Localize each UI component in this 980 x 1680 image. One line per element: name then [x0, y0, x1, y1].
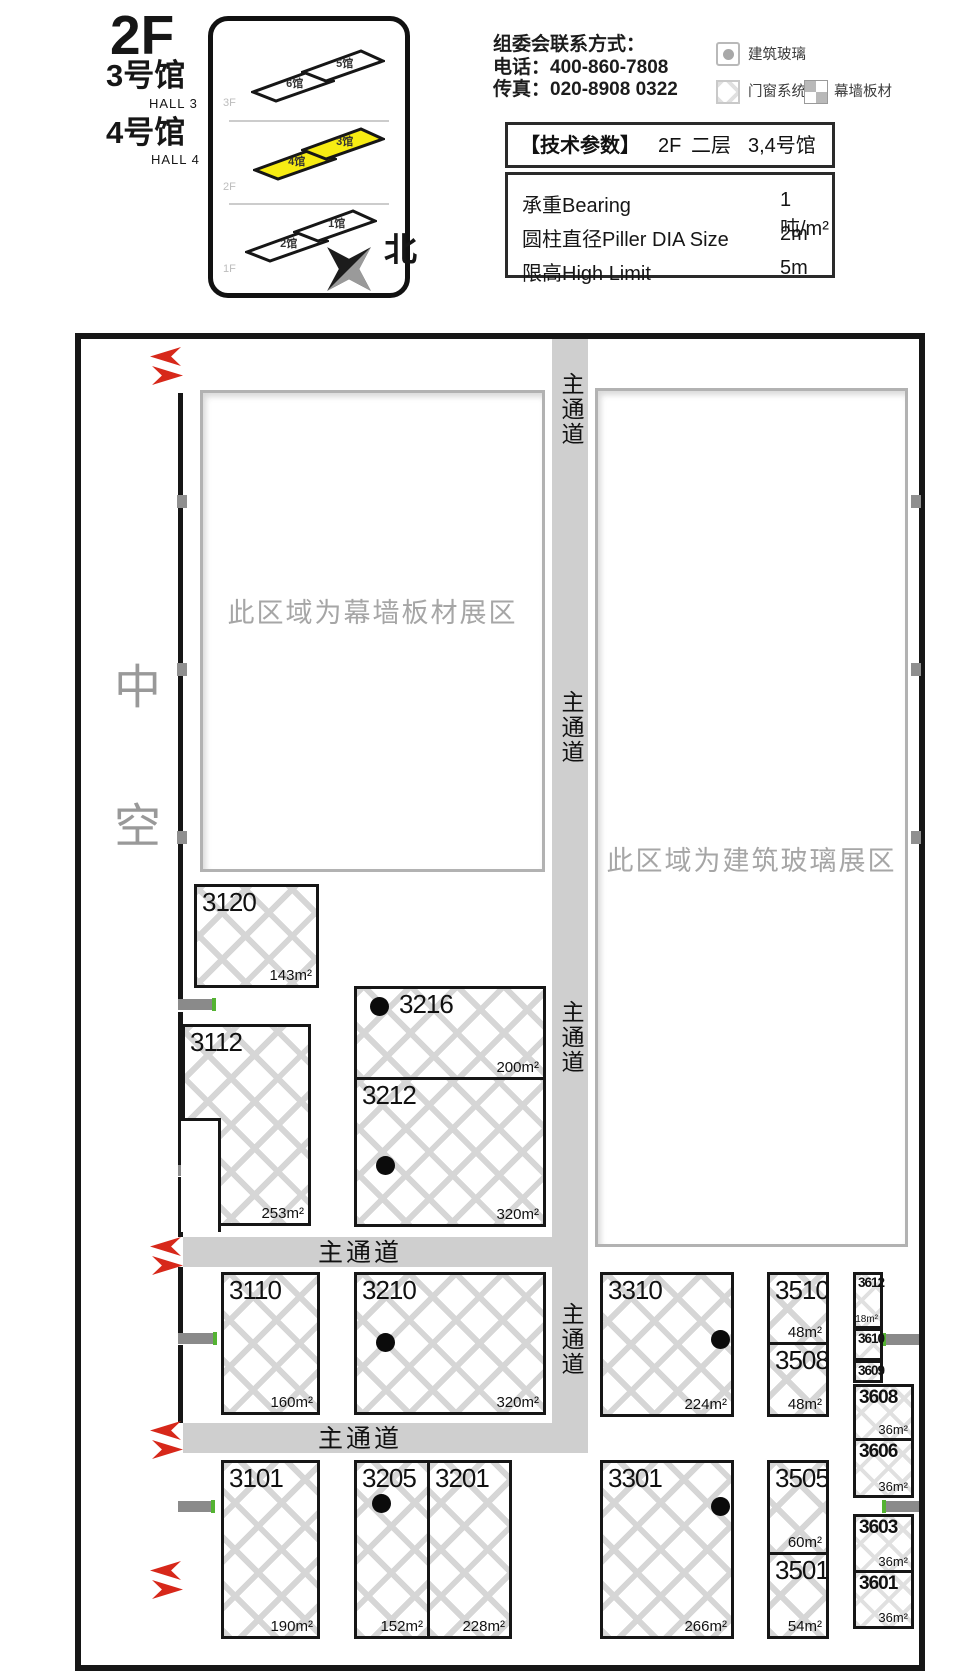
minimap-divider [229, 120, 389, 122]
tech-row-pillar: 圆柱直径Piller DIA Size 2m [508, 215, 832, 249]
contact-fax: 传真：020-8908 0322 [493, 79, 678, 102]
booth-size: 54m² [788, 1619, 822, 1636]
booth-size: 60m² [788, 1535, 822, 1552]
booth-3510[interactable]: 3510 48m² [767, 1272, 829, 1345]
glass-dot-icon [376, 1333, 395, 1352]
glass-legend-icon [716, 42, 740, 66]
aisle-label: 主通道 [552, 690, 588, 765]
tech-row-label: 承重Bearing [522, 189, 631, 218]
minimap-floor-label-2f: 2F [223, 181, 236, 193]
door-tick [211, 1500, 215, 1513]
legend-window-label: 门窗系统 [748, 85, 806, 100]
aisle-label: 主通道 [552, 1000, 588, 1075]
minimap-hall-5: 5馆 [301, 49, 385, 83]
booth-size: 266m² [684, 1619, 727, 1636]
booth-size: 320m² [496, 1207, 539, 1224]
booth-3608[interactable]: 3608 36m² [853, 1384, 914, 1441]
minimap-hall-1-label: 1馆 [328, 215, 345, 231]
curtainwall-area-label: 此区域为幕墙板材展区 [203, 591, 542, 630]
hall4-title: 4号馆 [106, 117, 185, 148]
glass-dot-icon [370, 997, 389, 1016]
glass-dot-icon [376, 1156, 395, 1175]
hall3-title: 3号馆 [106, 60, 185, 91]
checker-square [816, 92, 827, 103]
minimap-hall-3-label: 3馆 [336, 133, 353, 149]
booth-3505[interactable]: 3505 60m² [767, 1460, 829, 1555]
tech-row-value: 2m [780, 223, 808, 246]
north-label: 北 [384, 223, 417, 271]
booth-size: 18m² [855, 1314, 878, 1325]
booth-number: 3120 [202, 888, 256, 917]
booth-number: 3609 [858, 1364, 884, 1379]
curtainwall-area: 此区域为幕墙板材展区 [200, 390, 545, 872]
wall-segment [178, 1267, 183, 1334]
booth-3610[interactable]: 3610 [853, 1328, 883, 1361]
booth-size: 228m² [462, 1619, 505, 1636]
booth-number: 3601 [859, 1574, 897, 1595]
booth-3301[interactable]: 3301 266m² [600, 1460, 734, 1639]
tech-row-height: 限高High Limit 5m [508, 249, 832, 283]
wall-marker [911, 831, 921, 844]
booth-number: 3505 [775, 1464, 829, 1493]
wall-marker [911, 495, 921, 508]
booth-3310[interactable]: 3310 224m² [600, 1272, 734, 1417]
atrium-label: 中空 [99, 662, 168, 940]
minimap-floor-label-1f: 1F [223, 263, 236, 275]
tech-halls: 3,4号馆 [748, 136, 816, 156]
aisle-label: 主通道 [552, 1302, 588, 1377]
glass-dot-icon [711, 1497, 730, 1516]
floorplan-page: 2F 3号馆 HALL 3 4号馆 HALL 4 3F 2F 1F 6馆 5馆 … [0, 0, 980, 1680]
booth-size: 48m² [788, 1397, 822, 1414]
booth-size: 48m² [788, 1325, 822, 1342]
aisle-label: 主通道 [552, 372, 588, 447]
booth-3112-notch [181, 1118, 221, 1232]
tech-floor: 2F [658, 136, 681, 156]
legend-glass-label: 建筑玻璃 [748, 48, 806, 63]
booth-number: 3608 [859, 1388, 897, 1409]
booth-number: 3201 [435, 1464, 489, 1493]
booth-number: 3510 [775, 1276, 829, 1305]
booth-number: 3210 [362, 1276, 416, 1305]
booth-3601[interactable]: 3601 36m² [853, 1570, 914, 1629]
tech-title: 【技术参数】 [520, 136, 640, 156]
booth-3501[interactable]: 3501 54m² [767, 1552, 829, 1639]
minimap-hall-5-label: 5馆 [336, 55, 353, 71]
glass-dot-icon [711, 1330, 730, 1349]
booth-3603[interactable]: 3603 36m² [853, 1514, 914, 1573]
booth-number: 3101 [229, 1464, 283, 1493]
door-tick [213, 1332, 217, 1345]
hall3-subtitle: HALL 3 [149, 97, 198, 110]
contact-phone: 电话：400-860-7808 [493, 57, 678, 80]
booth-size: 224m² [684, 1397, 727, 1414]
hall4-subtitle: HALL 4 [151, 153, 200, 166]
booth-number: 3606 [859, 1442, 897, 1463]
booth-size: 200m² [496, 1060, 539, 1077]
booth-size: 152m² [380, 1619, 423, 1636]
minimap-divider [229, 203, 389, 205]
tech-floor-cn: 二层 [691, 136, 731, 156]
main-aisle-vertical [552, 339, 588, 1453]
booth-size: 190m² [270, 1619, 313, 1636]
curtainwall-legend-icon [804, 80, 828, 104]
contact-title: 组委会联系方式： [493, 34, 678, 57]
aisle-label: 主通道 [318, 1424, 402, 1454]
compass-star-icon [316, 236, 382, 302]
door-tick [212, 998, 216, 1011]
checker-square [805, 81, 816, 92]
booth-number: 3301 [608, 1464, 662, 1493]
tech-params-table: 承重Bearing 1吨/m² 圆柱直径Piller DIA Size 2m 限… [505, 172, 835, 278]
booth-number: 3112 [190, 1028, 242, 1057]
door-bar [886, 1501, 919, 1512]
booth-3101[interactable]: 3101 190m² [221, 1460, 320, 1639]
glass-dot-icon [723, 49, 734, 60]
booth-number: 3212 [362, 1081, 416, 1110]
booth-3609[interactable]: 3609 [853, 1360, 883, 1383]
booth-3216[interactable]: 3216 200m² [354, 986, 546, 1080]
booth-size: 160m² [270, 1395, 313, 1412]
booth-number: 3205 [362, 1464, 416, 1493]
tech-row-value: 5m [780, 257, 808, 280]
booth-size: 320m² [496, 1395, 539, 1412]
wall-marker [911, 663, 921, 676]
booth-number: 3603 [859, 1518, 897, 1539]
booth-number: 3508 [775, 1346, 829, 1375]
glass-area: 此区域为建筑玻璃展区 [595, 388, 908, 1247]
booth-number: 3110 [229, 1276, 281, 1305]
booth-3212[interactable]: 3212 320m² [354, 1077, 546, 1227]
booth-size: 253m² [261, 1206, 304, 1223]
door-bar [178, 1501, 211, 1512]
window-system-legend-icon [716, 80, 740, 104]
door-tick [882, 1500, 886, 1513]
booth-3210[interactable]: 3210 320m² [354, 1272, 546, 1415]
glass-area-label: 此区域为建筑玻璃展区 [598, 839, 905, 878]
booth-number: 3310 [608, 1276, 662, 1305]
wall-marker [177, 663, 187, 676]
contact-block: 组委会联系方式： 电话：400-860-7808 传真：020-8908 032… [493, 34, 678, 102]
booth-size: 36m² [878, 1555, 908, 1569]
aisle-label: 主通道 [318, 1238, 402, 1268]
legend-curtainwall-label: 幕墙板材 [834, 85, 892, 100]
wall-marker [177, 495, 187, 508]
floor-title: 2F [110, 8, 174, 63]
booth-size: 36m² [878, 1611, 908, 1625]
wall-segment [178, 1345, 183, 1423]
booth-3110[interactable]: 3110 160m² [221, 1272, 320, 1415]
tech-row-label: 圆柱直径Piller DIA Size [522, 223, 729, 252]
door-bar [886, 1334, 919, 1345]
tech-row-bearing: 承重Bearing 1吨/m² [508, 181, 832, 215]
wall-segment [178, 393, 183, 1000]
booth-3508[interactable]: 3508 48m² [767, 1342, 829, 1417]
booth-3606[interactable]: 3606 36m² [853, 1438, 914, 1498]
booth-size: 143m² [269, 968, 312, 985]
booth-size: 36m² [878, 1480, 908, 1494]
booth-number: 3501 [775, 1556, 829, 1585]
tech-params-header: 【技术参数】 2F 二层 3,4号馆 [505, 122, 835, 168]
door-bar [178, 999, 212, 1010]
glass-dot-icon [372, 1494, 391, 1513]
wall-marker [177, 831, 187, 844]
tech-row-label: 限高High Limit [522, 257, 651, 286]
booth-size: 36m² [878, 1423, 908, 1437]
booth-3612[interactable]: 3612 18m² [853, 1272, 883, 1329]
booth-number: 3610 [858, 1332, 884, 1347]
minimap-floor-label-3f: 3F [223, 97, 236, 109]
booth-3120[interactable]: 3120 143m² [194, 884, 319, 988]
booth-3201[interactable]: 3201 228m² [427, 1460, 512, 1639]
booth-number: 3216 [399, 990, 453, 1019]
door-bar [178, 1333, 213, 1344]
minimap-hall-3-highlighted: 3馆 [301, 127, 385, 161]
booth-number: 3612 [858, 1276, 884, 1291]
booth-3205[interactable]: 3205 152m² [354, 1460, 430, 1639]
